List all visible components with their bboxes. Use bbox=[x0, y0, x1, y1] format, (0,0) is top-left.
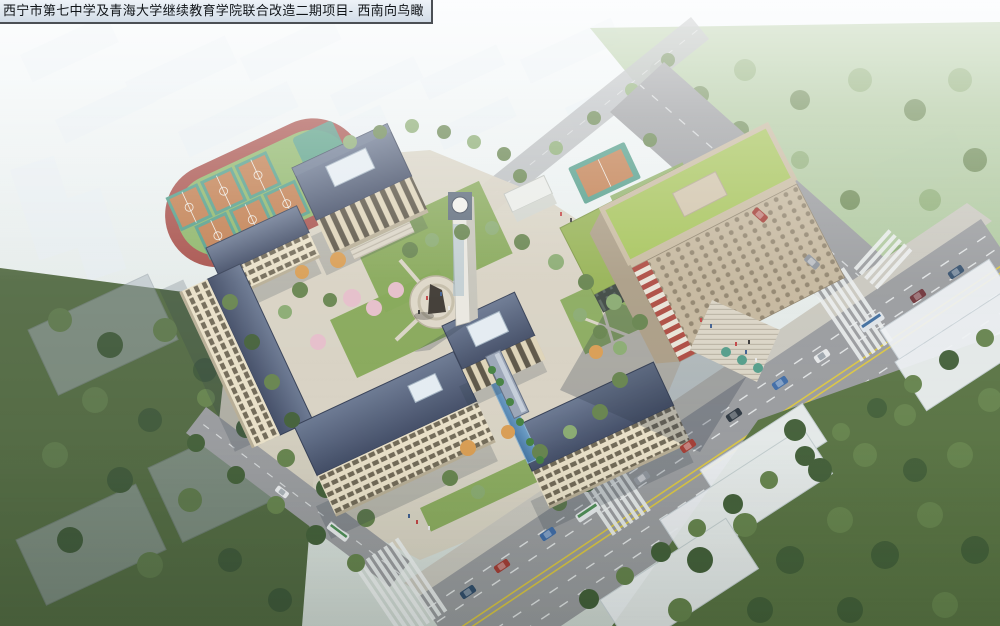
foreground-vignette bbox=[0, 0, 1000, 626]
view-title-label: 西宁市第七中学及青海大学继续教育学院联合改造二期项目- 西南向鸟瞰 bbox=[0, 0, 433, 24]
aerial-rendering bbox=[0, 0, 1000, 626]
rendering-canvas: 西宁市第七中学及青海大学继续教育学院联合改造二期项目- 西南向鸟瞰 bbox=[0, 0, 1000, 626]
